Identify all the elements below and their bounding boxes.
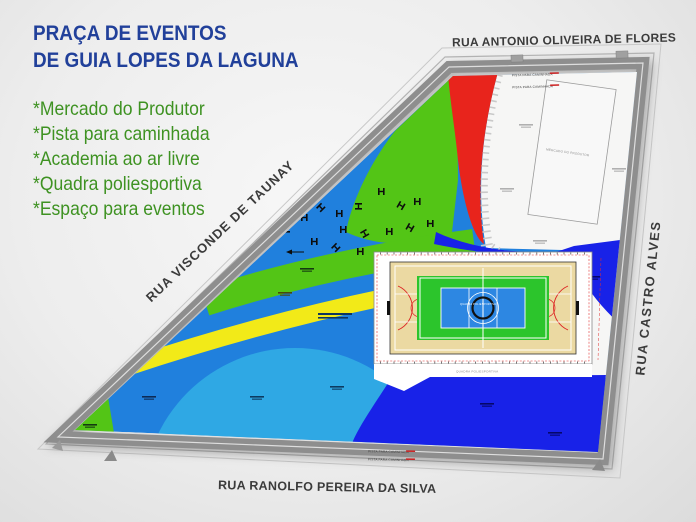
court: QUADRA POLIESPORTIVA QUADRA POLIESPORTIV… [374,252,601,391]
court-label: QUADRA POLIESPORTIVA [456,370,499,374]
feature-list: *Mercado do Produtor *Pista para caminha… [33,97,210,222]
zone-green-wedge [346,76,458,243]
feature-item: *Pista para caminhada [33,122,210,147]
title-line2: DE GUIA LOPES DA LAGUNA [33,47,299,74]
entrance-ramp [511,55,523,62]
goal-left [387,301,390,315]
corner-marker [104,450,117,461]
title-line1: PRAÇA DE EVENTOS [33,20,299,47]
feature-item: *Academia ao ar livre [33,147,210,172]
entrance-ramp [616,51,628,58]
page-title: PRAÇA DE EVENTOS DE GUIA LOPES DA LAGUNA [33,20,299,74]
zone-royal-bottom [350,375,606,453]
court-center-label: QUADRA POLIESPORTIVA [460,302,496,306]
site-plan-svg: MERCADO DO PRODUTOR PISTA PARA CAMINHADA… [0,0,696,522]
feature-item: *Espaço para eventos [33,197,210,222]
svg-text:PISTA PARA CAMINHADA: PISTA PARA CAMINHADA [368,457,410,462]
goal-right [576,301,579,315]
slide: MERCADO DO PRODUTOR PISTA PARA CAMINHADA… [0,0,696,522]
feature-item: *Mercado do Produtor [33,97,210,122]
feature-item: *Quadra poliesportiva [33,172,210,197]
